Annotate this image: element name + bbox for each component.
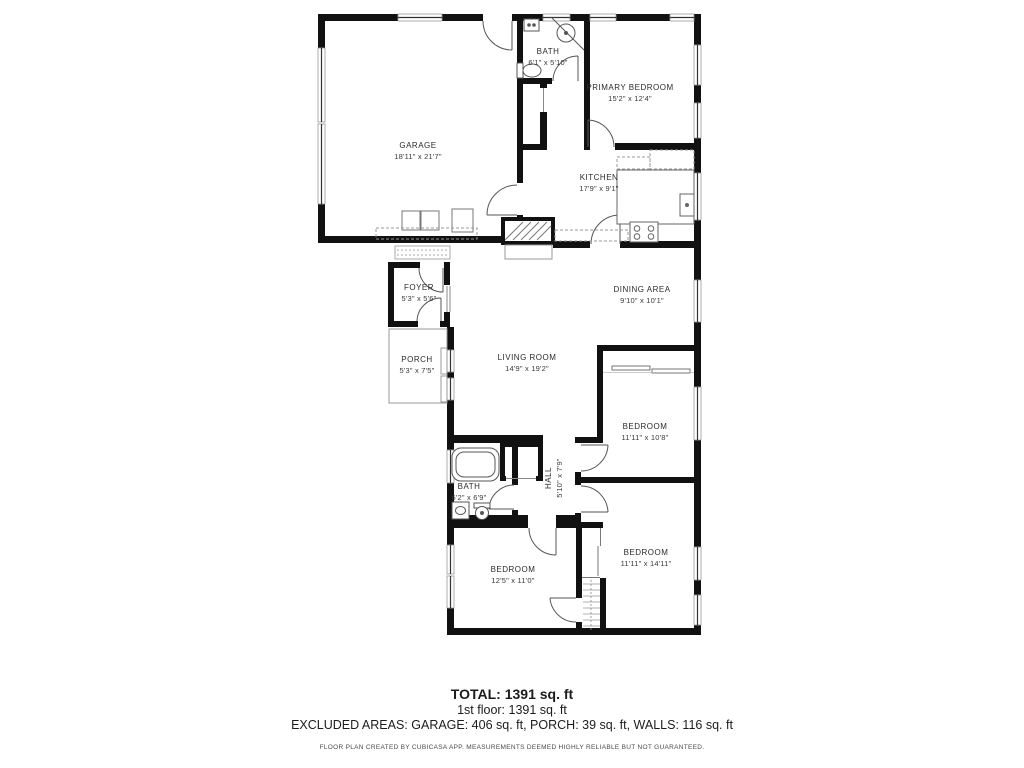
first-floor-area-text: 1st floor: 1391 sq. ft xyxy=(0,703,1024,717)
stairs-hatch xyxy=(503,219,553,259)
toilet-icon xyxy=(517,63,523,78)
walls xyxy=(318,14,701,635)
appliance-icon xyxy=(421,211,439,230)
sink-icon xyxy=(524,19,539,31)
foyer-porch-door xyxy=(417,298,441,321)
disclaimer-text: FLOOR PLAN CREATED BY CUBICASA APP. MEAS… xyxy=(0,744,1024,751)
garage-rear-door xyxy=(483,21,512,50)
left-bedroom-door xyxy=(529,528,556,555)
kitchen-fixtures xyxy=(555,150,694,242)
floor-plan-drawing xyxy=(0,0,1024,768)
windows xyxy=(318,14,701,625)
bath2-door xyxy=(489,485,514,509)
garage-fixtures xyxy=(376,209,477,239)
foyer-entry-door xyxy=(419,268,443,292)
appliance-icon xyxy=(402,211,420,230)
stove-icon xyxy=(630,222,658,242)
mid-bedroom-door xyxy=(581,445,608,471)
entry-deck xyxy=(395,246,450,259)
floor-plan-page: GARAGE18'11" x 21'7" BATH6'1" x 5'10" PR… xyxy=(0,0,1024,768)
porch-outline xyxy=(389,329,447,403)
appliance-icon xyxy=(452,209,473,232)
right-bedroom-door xyxy=(581,486,608,512)
total-area-text: TOTAL: 1391 sq. ft xyxy=(0,686,1024,702)
closet-door xyxy=(550,598,576,622)
primary-bedroom-door xyxy=(588,120,614,147)
refrigerator-outline xyxy=(650,150,694,169)
garage-interior-door xyxy=(487,185,517,215)
excluded-areas-text: EXCLUDED AREAS: GARAGE: 406 sq. ft, PORC… xyxy=(0,718,1024,732)
bath-top-door xyxy=(553,56,578,81)
